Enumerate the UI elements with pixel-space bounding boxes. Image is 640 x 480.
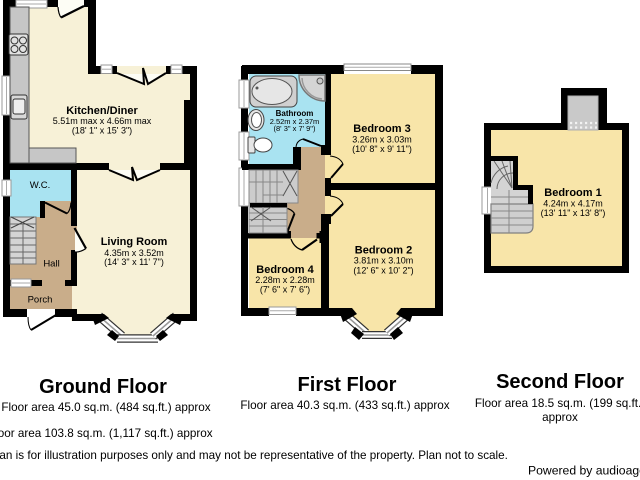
svg-text:approx: approx: [542, 411, 578, 424]
svg-text:Second Floor: Second Floor: [496, 371, 624, 393]
svg-text:This plan is for illustration: This plan is for illustration purposes o…: [0, 449, 508, 462]
svg-text:Porch: Porch: [28, 295, 53, 306]
svg-text:(8' 3" x 7' 9"): (8' 3" x 7' 9"): [274, 124, 316, 133]
svg-text:First Floor: First Floor: [298, 374, 397, 396]
svg-text:Floor area 18.5 sq.m. (199 sq.: Floor area 18.5 sq.m. (199 sq.ft.): [475, 397, 640, 410]
svg-text:Powered by audioagent: Powered by audioagent: [528, 464, 640, 478]
svg-text:3.26m x 3.03m: 3.26m x 3.03m: [352, 135, 412, 145]
svg-text:Bedroom 3: Bedroom 3: [353, 123, 410, 135]
svg-text:(7' 6" x 7' 6"): (7' 6" x 7' 6"): [260, 285, 310, 295]
svg-text:Bedroom 1: Bedroom 1: [544, 187, 601, 199]
svg-text:Living Room: Living Room: [101, 236, 168, 248]
svg-text:W.C.: W.C.: [30, 180, 51, 191]
svg-text:(14' 3" x 11' 7"): (14' 3" x 11' 7"): [104, 257, 164, 267]
svg-text:Floor area 40.3 sq.m. (433 sq.: Floor area 40.3 sq.m. (433 sq.ft.) appro…: [240, 399, 449, 412]
svg-text:(18' 1" x 15' 3"): (18' 1" x 15' 3"): [72, 126, 132, 136]
svg-text:Hall: Hall: [43, 259, 59, 270]
svg-text:4.24m x 4.17m: 4.24m x 4.17m: [543, 199, 603, 209]
svg-text:(12' 6" x 10' 2"): (12' 6" x 10' 2"): [353, 266, 413, 276]
svg-text:Ground Floor: Ground Floor: [39, 376, 167, 398]
svg-text:(13' 11" x 13' 8"): (13' 11" x 13' 8"): [541, 208, 606, 218]
svg-text:3.81m x 3.10m: 3.81m x 3.10m: [354, 256, 414, 266]
svg-text:5.51m max x 4.66m max: 5.51m max x 4.66m max: [53, 116, 152, 126]
svg-text:Floor area 45.0 sq.m. (484 sq.: Floor area 45.0 sq.m. (484 sq.ft.) appro…: [1, 401, 210, 414]
svg-text:Total floor area 103.8 sq.m. (: Total floor area 103.8 sq.m. (1,117 sq.f…: [0, 427, 213, 440]
svg-text:(10' 8" x 9' 11"): (10' 8" x 9' 11"): [352, 144, 412, 154]
svg-text:2.28m x 2.28m: 2.28m x 2.28m: [255, 275, 315, 285]
